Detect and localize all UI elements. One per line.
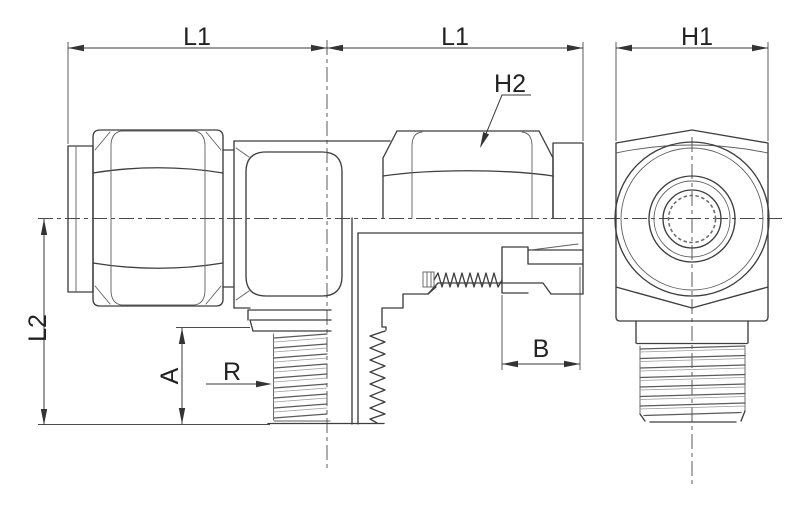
dim-h2-leader: H2 (480, 70, 531, 148)
left-end-cap (68, 146, 93, 292)
dim-l2: L2 (24, 219, 270, 425)
dim-l1-left-label: L1 (183, 23, 211, 51)
fitting-technical-drawing: L1 L1 H1 H2 L2 A R (0, 0, 790, 531)
branch-thread-section-profile (370, 331, 385, 423)
side-view (68, 130, 583, 424)
centerlines (38, 40, 784, 486)
branch-male-thread (248, 310, 384, 424)
spring-thread-schematic (434, 273, 502, 287)
dim-a-label: A (156, 367, 184, 384)
branch-thread-lines (274, 334, 327, 418)
dim-h1: H1 (616, 23, 768, 141)
dim-l1-right: L1 (327, 23, 583, 141)
dim-b-label: B (533, 335, 550, 363)
dim-h1-label: H1 (681, 23, 713, 51)
dim-r-leader: R (206, 358, 272, 387)
dim-l2-label: L2 (24, 314, 52, 342)
dim-r-label: R (223, 358, 241, 386)
stud-thread-lines (640, 346, 745, 416)
section-internals (352, 218, 583, 424)
dim-l1-left: L1 (68, 23, 327, 144)
body-hex (234, 141, 390, 308)
right-nut (383, 131, 553, 218)
dim-h2-label: H2 (494, 70, 526, 98)
ferrule-ring (223, 141, 234, 308)
dim-l1-right-label: L1 (441, 23, 469, 51)
left-nut (93, 130, 223, 306)
drawing-canvas: L1 L1 H1 H2 L2 A R (0, 0, 790, 531)
